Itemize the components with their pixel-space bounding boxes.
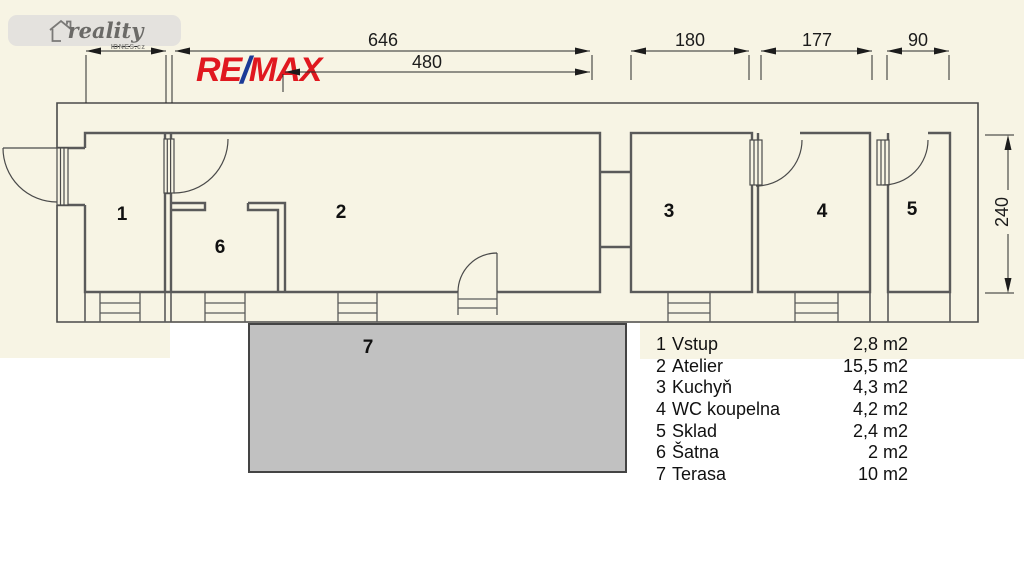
legend-num: 2 bbox=[656, 356, 666, 376]
dimension-label-177: 177 bbox=[802, 31, 832, 49]
wall-connectors bbox=[85, 292, 950, 322]
legend-name: Terasa bbox=[672, 464, 726, 484]
legend-num: 5 bbox=[656, 421, 666, 441]
legend-name: Šatna bbox=[672, 442, 719, 462]
reality-idnes-watermark: reality IDNES.cz bbox=[8, 15, 181, 46]
legend-row-6: 6Šatna 2 m2 bbox=[656, 442, 908, 464]
dimension-label-180: 180 bbox=[675, 31, 705, 49]
legend-area: 4,2 m2 bbox=[853, 399, 908, 420]
legend-area: 2,4 m2 bbox=[853, 421, 908, 442]
room-label-4: 4 bbox=[817, 202, 828, 221]
legend-name: Sklad bbox=[672, 421, 717, 441]
legend-name: Atelier bbox=[672, 356, 723, 376]
watermark-suffix: IDNES.cz bbox=[111, 44, 146, 51]
legend-area: 10 m2 bbox=[858, 464, 908, 485]
legend-row-7: 7Terasa 10 m2 bbox=[656, 464, 908, 486]
legend-area: 15,5 m2 bbox=[843, 356, 908, 377]
dimension-label-646: 646 bbox=[368, 31, 398, 49]
legend-num: 3 bbox=[656, 377, 666, 397]
legend-row-5: 5Sklad 2,4 m2 bbox=[656, 420, 908, 442]
floor-plan-page: RE/MAX bbox=[0, 0, 1024, 563]
dimension-label-90: 90 bbox=[908, 31, 928, 49]
room-label-1: 1 bbox=[117, 205, 128, 224]
legend-name: Vstup bbox=[672, 334, 718, 354]
legend-row-4: 4WC koupelna 4,2 m2 bbox=[656, 399, 908, 421]
outer-walls bbox=[57, 103, 978, 322]
legend-area: 4,3 m2 bbox=[853, 377, 908, 398]
legend-row-1: 1Vstup 2,8 m2 bbox=[656, 334, 908, 356]
legend-num: 1 bbox=[656, 334, 666, 354]
legend-num: 7 bbox=[656, 464, 666, 484]
legend-name: WC koupelna bbox=[672, 399, 780, 419]
room-label-5: 5 bbox=[907, 200, 918, 219]
room-label-7: 7 bbox=[363, 338, 374, 357]
windows bbox=[100, 292, 838, 322]
legend-area: 2,8 m2 bbox=[853, 334, 908, 355]
legend-name: Kuchyň bbox=[672, 377, 732, 397]
dimension-label-480: 480 bbox=[412, 53, 442, 71]
room-label-2: 2 bbox=[336, 203, 347, 222]
room-label-6: 6 bbox=[215, 238, 226, 257]
legend-row-3: 3Kuchyň 4,3 m2 bbox=[656, 377, 908, 399]
dimension-label-240: 240 bbox=[993, 197, 1011, 227]
legend-num: 6 bbox=[656, 442, 666, 462]
watermark-brand: reality bbox=[68, 20, 144, 41]
legend-row-2: 2Atelier 15,5 m2 bbox=[656, 356, 908, 378]
room-legend: 1Vstup 2,8 m2 2Atelier 15,5 m2 3Kuchyň 4… bbox=[656, 334, 908, 485]
legend-num: 4 bbox=[656, 399, 666, 419]
room-label-3: 3 bbox=[664, 202, 675, 221]
legend-area: 2 m2 bbox=[868, 442, 908, 463]
doors bbox=[3, 139, 928, 292]
